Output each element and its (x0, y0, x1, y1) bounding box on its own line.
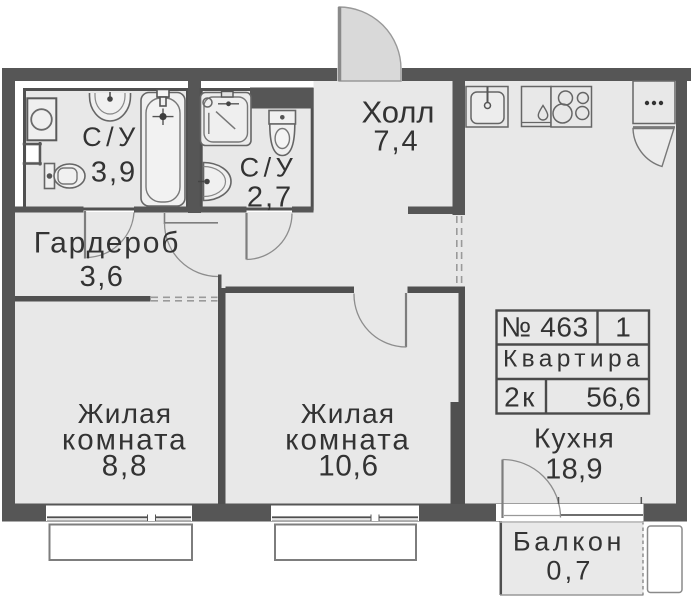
svg-text:Гардероб: Гардероб (34, 227, 180, 260)
svg-text:0,7: 0,7 (546, 556, 593, 586)
svg-text:2к: 2к (504, 382, 537, 413)
svg-text:С/У: С/У (240, 153, 298, 183)
svg-text:2,7: 2,7 (247, 182, 293, 214)
svg-text:7,4: 7,4 (373, 126, 419, 158)
svg-text:3,9: 3,9 (91, 157, 137, 189)
svg-text:18,9: 18,9 (545, 454, 603, 486)
svg-text:3,6: 3,6 (80, 261, 125, 293)
svg-text:1: 1 (615, 312, 631, 343)
svg-text:10,6: 10,6 (318, 450, 379, 483)
svg-text:8,8: 8,8 (102, 450, 148, 483)
svg-text:С/У: С/У (82, 122, 140, 152)
svg-text:№ 463: № 463 (501, 312, 589, 343)
svg-text:Кухня: Кухня (534, 423, 615, 454)
svg-text:Балкон: Балкон (513, 527, 625, 557)
svg-text:56,6: 56,6 (586, 382, 641, 413)
svg-text:Квартира: Квартира (503, 346, 644, 373)
svg-text:Холл: Холл (361, 95, 434, 130)
